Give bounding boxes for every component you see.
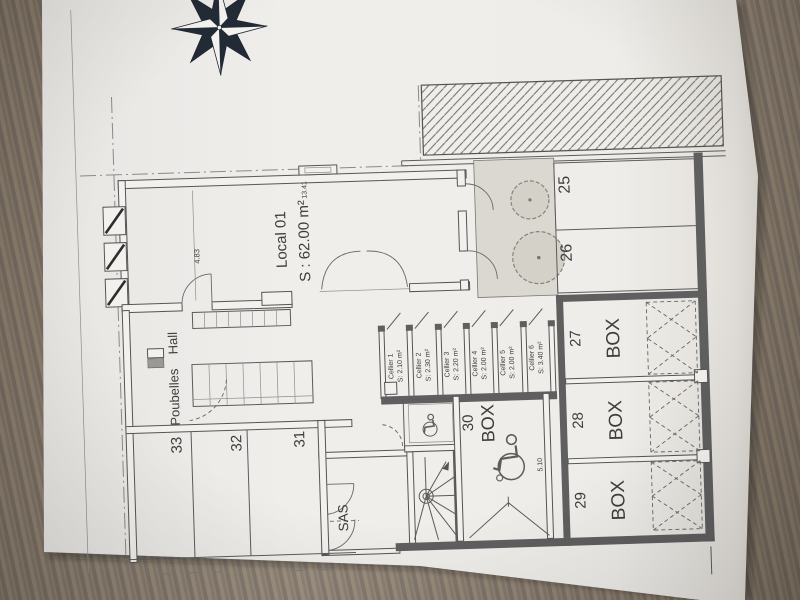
photo-of-floor-plan: { "plan": { "local": { "name": "Local 01… <box>0 0 800 600</box>
cellier-6-name: Cellier 6 <box>528 345 536 371</box>
floor-plan-photo: Local 01 S : 62.00 m² 4.83 13.41 Poubell… <box>0 0 800 600</box>
cellier-1-area: S: 2.10 m² <box>397 349 405 382</box>
poubelles-label: Poubelles <box>166 368 183 426</box>
cellier-4-name: Cellier 4 <box>472 351 480 377</box>
cellier-3-name: Cellier 3 <box>444 351 452 377</box>
courtyard <box>474 158 566 298</box>
window-icon <box>105 279 128 308</box>
window-icon <box>104 243 127 272</box>
cellier-2-area: S: 2.30 m² <box>425 348 433 381</box>
cellier-5-area: S: 2.00 m² <box>508 346 516 379</box>
dimension-4-83: 4.83 <box>192 249 201 264</box>
box-27-label: BOX <box>603 318 625 359</box>
sas-label: SAS <box>335 504 351 531</box>
local-01-name: Local 01 <box>272 211 291 268</box>
cellier-2-name: Cellier 2 <box>416 352 424 378</box>
box-29-number: 29 <box>572 492 590 509</box>
box-30-number: 30 <box>460 414 478 431</box>
parking-25-number: 25 <box>556 175 574 193</box>
local-01-area: S : 62.00 m² <box>295 200 315 282</box>
cellier-3-area: S: 2.20 m² <box>453 347 461 380</box>
axis-dashes <box>158 568 338 575</box>
cellier-5-name: Cellier 5 <box>500 350 508 376</box>
hatched-area <box>421 76 723 155</box>
parking-31-number: 31 <box>291 431 309 448</box>
window-icon <box>103 207 126 236</box>
box-29-label: BOX <box>608 480 630 521</box>
box-28-label: BOX <box>605 400 627 441</box>
parking-26-number: 26 <box>558 243 576 261</box>
hall-label: Hall <box>165 332 181 355</box>
duct <box>148 358 164 367</box>
parking-32-number: 32 <box>228 435 246 452</box>
box-28-number: 28 <box>570 412 588 429</box>
cellier-4-area: S: 2.00 m² <box>481 346 489 379</box>
duct <box>147 348 163 357</box>
cellier-6-area: S: 3.40 m² <box>537 341 545 374</box>
dimension-5-10: 5.10 <box>537 458 544 472</box>
box-27-number: 27 <box>567 330 585 347</box>
box-30-label: BOX <box>477 404 498 443</box>
parking-33-number: 33 <box>168 436 186 453</box>
cellier-1-name: Cellier 1 <box>388 353 396 379</box>
dimension-13-41: 13.41 <box>301 181 309 199</box>
